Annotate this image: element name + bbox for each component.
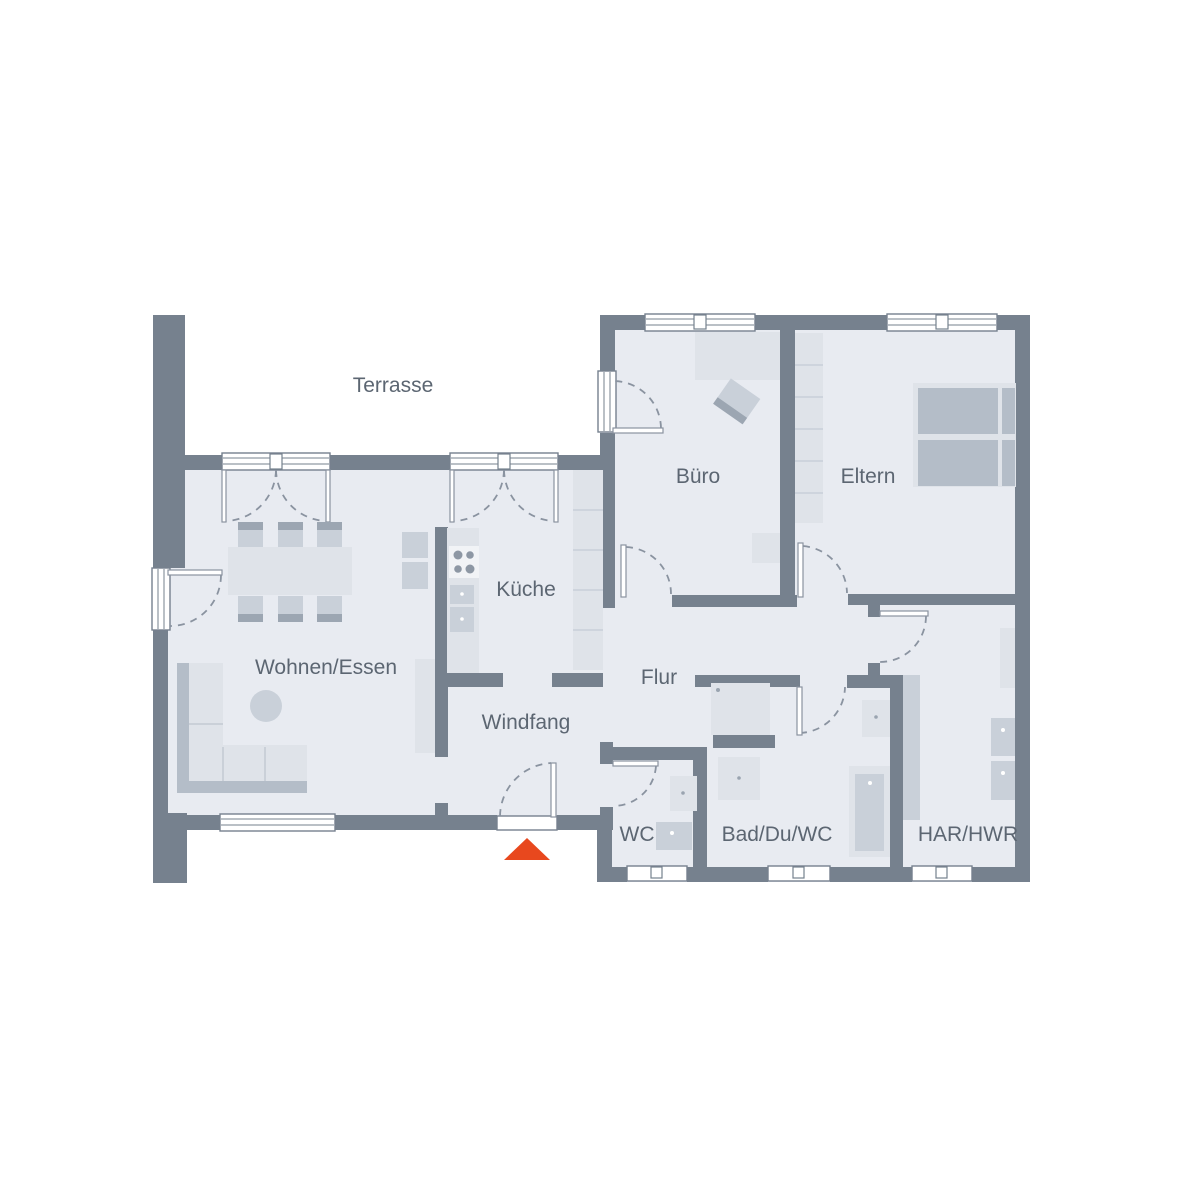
- door-office-terrace: [598, 371, 616, 432]
- window-bath: [768, 866, 830, 881]
- sink: [450, 585, 474, 632]
- room-label-bad-du-wc: Bad/Du/WC: [722, 823, 833, 846]
- utility-cabinet-tall: [903, 675, 920, 820]
- dryer: [991, 761, 1015, 800]
- utility-cabinet: [1000, 628, 1015, 688]
- kitchen-tall-cabinets: [573, 470, 603, 670]
- room-label-kueche: Küche: [496, 578, 556, 601]
- room-label-windfang: Windfang: [482, 711, 571, 734]
- french-door-living: [222, 453, 330, 470]
- window-parents-top: [887, 314, 997, 331]
- window-office-top: [645, 314, 755, 331]
- double-bed: [913, 383, 1016, 487]
- floor-plan: Terrasse Wohnen/Essen Küche Windfang Flu…: [0, 0, 1200, 1200]
- window-living-left: [152, 568, 170, 630]
- wc-toilet: [656, 822, 692, 850]
- dining-table: [228, 547, 352, 595]
- office-cabinet: [752, 533, 780, 563]
- room-label-eltern: Eltern: [841, 465, 896, 488]
- floor-plan-page: Terrasse Wohnen/Essen Küche Windfang Flu…: [0, 0, 1200, 1200]
- wardrobe: [795, 333, 823, 523]
- room-label-flur: Flur: [641, 666, 677, 689]
- coffee-table: [250, 690, 282, 722]
- desk: [695, 332, 780, 380]
- entrance-marker: [504, 838, 550, 860]
- french-door-kitchen: [450, 453, 558, 470]
- room-label-buero: Büro: [676, 465, 720, 488]
- sideboard: [415, 659, 435, 753]
- stove: [449, 546, 479, 578]
- washer: [991, 718, 1015, 756]
- dining-set: [228, 522, 352, 622]
- room-label-wc: WC: [620, 823, 655, 846]
- bathtub: [849, 766, 890, 857]
- window-utility: [912, 866, 972, 881]
- window-living-bottom: [220, 814, 335, 831]
- room-label-terrasse: Terrasse: [353, 374, 434, 397]
- room-label-wohnen-essen: Wohnen/Essen: [255, 656, 397, 679]
- shower: [711, 683, 770, 735]
- window-wc: [627, 866, 687, 881]
- room-label-har-hwr: HAR/HWR: [918, 823, 1018, 846]
